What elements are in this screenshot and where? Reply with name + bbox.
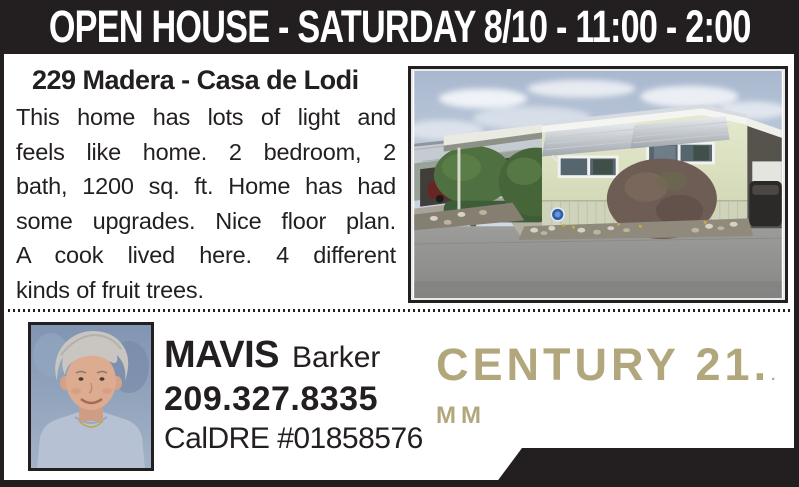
agent-photo-frame [28, 322, 154, 471]
listing-title: 229 Madera - Casa de Lodi [16, 62, 396, 98]
agent-phone: 209.327.8335 [164, 380, 423, 419]
headline-text: OPEN HOUSE - SATURDAY 8/10 - 11:00 - 2:0… [49, 1, 751, 53]
description-line: bath, 1200 sq. ft. Home has had [16, 169, 396, 204]
listing-description: This home has lots of light and feels li… [16, 100, 396, 307]
property-photo: 229 [413, 71, 783, 298]
description-line: A cook lived here. 4 different [16, 238, 396, 273]
description-line: feels like home. 2 bedroom, 2 [16, 135, 396, 170]
agent-portrait [31, 325, 151, 468]
brand-office-code: MM [436, 402, 779, 430]
registered-dot: . [771, 367, 779, 384]
agent-info-block: MAVIS Barker 209.327.8335 CalDRE #018585… [164, 334, 423, 456]
agent-first-name: MAVIS [164, 334, 279, 377]
description-line: This home has lots of light and [16, 100, 396, 135]
listing-text-block: 229 Madera - Casa de Lodi This home has … [16, 62, 396, 307]
carport [747, 118, 781, 228]
agent-license: CalDRE #01858576 [164, 422, 423, 456]
open-house-flyer: OPEN HOUSE - SATURDAY 8/10 - 11:00 - 2:0… [0, 0, 799, 487]
headline-banner: OPEN HOUSE - SATURDAY 8/10 - 11:00 - 2:0… [0, 0, 799, 54]
brand-wordmark: CENTURY 21.. [436, 342, 779, 399]
right-border [794, 0, 799, 487]
agent-last-name: Barker [292, 341, 380, 375]
agent-name: MAVIS Barker [164, 334, 423, 377]
brand-logo: CENTURY 21.. MM [436, 342, 779, 430]
property-photo-frame: 229 [408, 66, 788, 303]
bottom-border [0, 480, 799, 487]
dotted-separator [8, 309, 792, 312]
description-line: some upgrades. Nice floor plan. [16, 204, 396, 239]
description-line: kinds of fruit trees. [16, 273, 396, 308]
left-border [0, 0, 4, 487]
